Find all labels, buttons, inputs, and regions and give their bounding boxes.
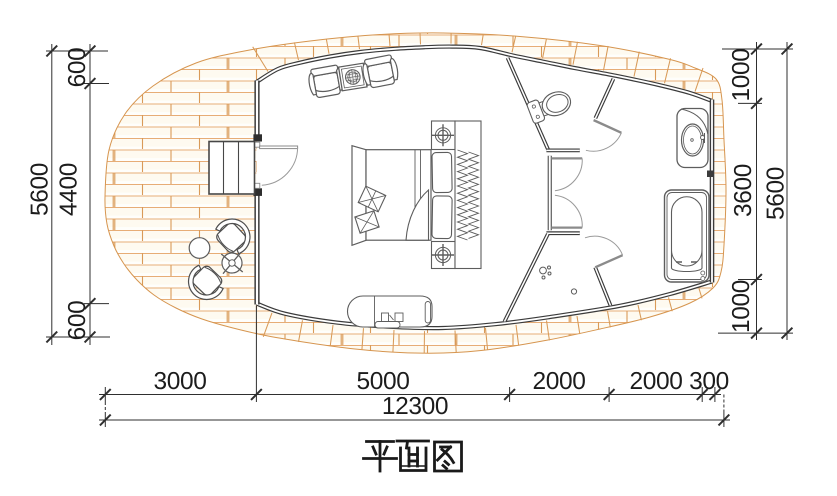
svg-text:4400: 4400 xyxy=(56,163,83,216)
svg-text:2000: 2000 xyxy=(630,368,683,395)
svg-text:5600: 5600 xyxy=(27,163,54,216)
svg-text:1000: 1000 xyxy=(728,280,755,333)
svg-text:2000: 2000 xyxy=(533,368,586,395)
svg-text:600: 600 xyxy=(64,48,91,88)
svg-text:3000: 3000 xyxy=(154,368,207,395)
svg-text:3600: 3600 xyxy=(730,164,757,217)
svg-text:600: 600 xyxy=(64,301,91,341)
svg-text:300: 300 xyxy=(689,368,729,395)
svg-text:1000: 1000 xyxy=(728,49,755,102)
svg-text:5600: 5600 xyxy=(763,167,790,220)
svg-text:12300: 12300 xyxy=(382,393,448,420)
svg-text:5000: 5000 xyxy=(357,368,410,395)
